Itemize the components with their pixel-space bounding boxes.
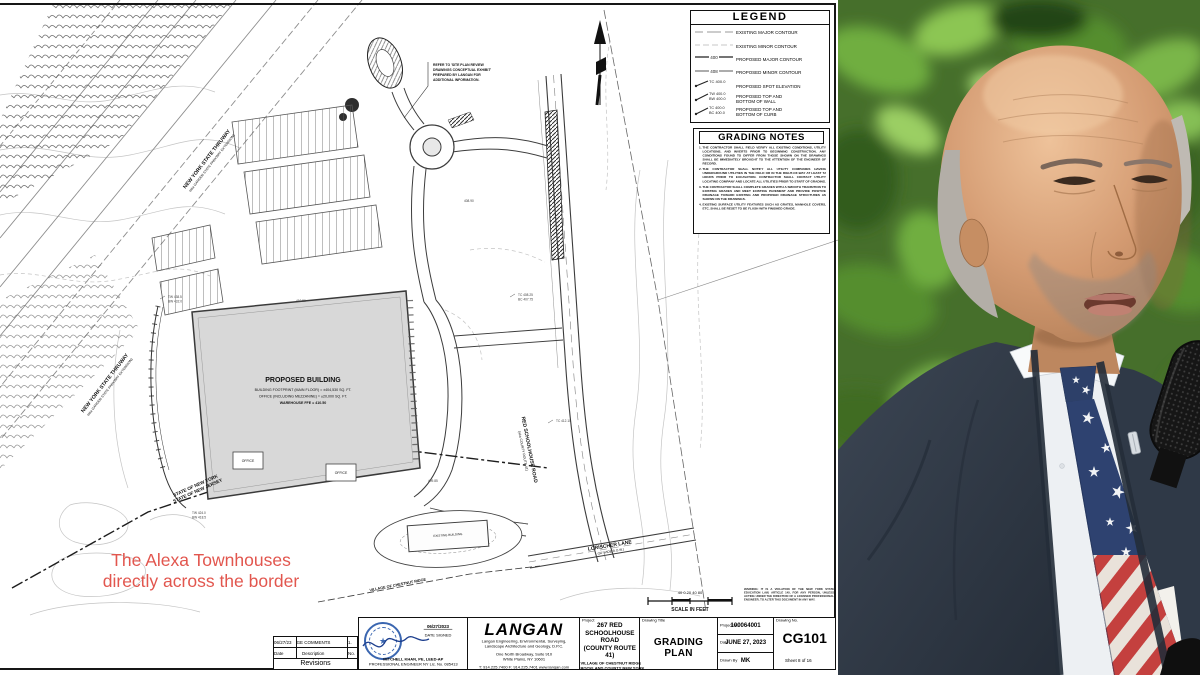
svg-text:OFFICE: OFFICE	[242, 459, 255, 463]
parking-lots	[152, 105, 382, 315]
annotation-alexa-townhouses: The Alexa Townhouses directly across the…	[88, 550, 314, 592]
drawing-number-cell: Drawing No. CG101 Sheet 8 of 16	[774, 618, 835, 669]
photo-graphic	[838, 0, 1200, 675]
warning-note: WARNING: IT IS A VIOLATION OF THE NEW YO…	[744, 588, 834, 614]
svg-text:TC 412.10: TC 412.10	[556, 419, 571, 423]
svg-text:TW 424.0: TW 424.0	[192, 511, 206, 515]
svg-text:OFFICE (INCLUDING MEZZANINE) =: OFFICE (INCLUDING MEZZANINE) = ±20,000 S…	[259, 395, 348, 399]
thruway-sublabel: (aka GARDEN STATE PARKWAY EXTENSION)	[188, 133, 236, 192]
grading-notes-title: GRADING NOTES	[699, 131, 824, 144]
langan-logo: LANGAN	[468, 620, 579, 640]
grading-note: THE CONTRACTOR SHALL FIELD VERIFY ALL EX…	[703, 146, 827, 166]
grading-notes-box: GRADING NOTES THE CONTRACTOR SHALL FIELD…	[693, 128, 830, 234]
drawing-number: CG101	[774, 630, 835, 646]
svg-text:408: 408	[710, 69, 718, 74]
svg-text:TC 400.0: TC 400.0	[709, 79, 726, 84]
firm-cell: LANGAN Langan Engineering, Environmental…	[468, 618, 580, 669]
engineer-name: MITCHELL KHAN, PE, LEED-AP PROFESSIONAL …	[359, 658, 467, 668]
legend-item: TC 400.0BC 400.0 PROPOSED TOP ANDBOTTOM …	[691, 105, 829, 118]
grading-notes-body: THE CONTRACTOR SHALL FIELD VERIFY ALL EX…	[697, 146, 826, 211]
grading-note: EXISTING SURFACE UTILITY FEATURES SUCH A…	[703, 203, 827, 211]
revision-header-row: Date Description No.	[274, 648, 357, 659]
svg-text:BUILDING FOOTPRINT (MAIN FLOOR: BUILDING FOOTPRINT (MAIN FLOOR) = ±404,5…	[255, 388, 352, 392]
meta-cell: Project No.100064001 DateJUNE 27, 2023 D…	[718, 618, 775, 669]
svg-text:PROPOSED BUILDING: PROPOSED BUILDING	[265, 377, 341, 384]
svg-text:400: 400	[710, 55, 718, 60]
title-block: ★ 06/27/2023 DATE SIGNED MITCHELL KHAN, …	[358, 617, 836, 670]
svg-text:408.90: 408.90	[464, 199, 474, 203]
svg-text:BW 432.0: BW 432.0	[168, 300, 182, 304]
svg-text:410.50: 410.50	[296, 299, 306, 303]
svg-text:TC 408.25: TC 408.25	[518, 293, 533, 297]
grading-plan-sheet: REFER TO 'SITE PLAN REVIEW DRAWINGS CONC…	[0, 0, 838, 675]
retaining-wall	[151, 306, 186, 508]
svg-text:OFFICE: OFFICE	[335, 471, 348, 475]
svg-text:WAREHOUSE FFE = 410.50: WAREHOUSE FFE = 410.50	[280, 401, 326, 405]
svg-text:40 0 20 40 80: 40 0 20 40 80	[678, 590, 703, 595]
note-line: REFER TO 'SITE PLAN REVIEW	[433, 63, 485, 67]
svg-text:SCALE IN FEET: SCALE IN FEET	[671, 607, 709, 613]
shirt-button	[1060, 464, 1065, 469]
revisions-block: 06/27/23 REVISED PER VILLAGE COMMENTS 1.…	[273, 636, 358, 670]
svg-text:BC 407.75: BC 407.75	[518, 298, 533, 302]
note-line: ADDITIONAL INFORMATION.	[433, 78, 479, 82]
drawing-title: GRADING PLAN	[640, 637, 716, 659]
grading-note: THE CONTRACTOR SHALL NOTIFY ALL UTILITY …	[703, 168, 827, 184]
politician-photo	[838, 0, 1200, 675]
tie-knot	[1060, 366, 1096, 402]
engineer-seal-cell: ★ 06/27/2023 DATE SIGNED MITCHELL KHAN, …	[359, 618, 468, 669]
grading-note: THE CONTRACTOR SHALL COMPLETE GRADES WIT…	[703, 185, 827, 201]
svg-text:TW 400.0: TW 400.0	[709, 92, 725, 96]
north-arrow-icon	[594, 20, 606, 105]
plot-footer-meta: Date: 6/27/2023 User: mk Style Table: La…	[452, 669, 836, 675]
reference-note: REFER TO 'SITE PLAN REVIEW DRAWINGS CONC…	[404, 62, 491, 118]
note-line: PREPARED BY LANGAN FOR	[433, 73, 481, 77]
legend-box: LEGEND EXISTING MAJOR CONTOUR EXISTING M…	[690, 10, 830, 123]
drawing-title-cell: Drawing Title GRADING PLAN	[640, 618, 717, 669]
revisions-title: Revisions	[274, 659, 357, 667]
date-signed: 06/27/2023 DATE SIGNED	[412, 624, 464, 639]
svg-text:BW 400.0: BW 400.0	[709, 97, 726, 101]
svg-text:BW 418.5: BW 418.5	[192, 516, 206, 520]
svg-text:409.85: 409.85	[428, 479, 438, 483]
svg-text:TC 400.0: TC 400.0	[709, 106, 725, 110]
village-label: VILLAGE OF CHESTNUT RIDGE	[369, 577, 427, 592]
graphic-scale: 40 0 20 40 80 SCALE IN FEET	[642, 588, 738, 614]
project-cell: Project 267 RED SCHOOLHOUSE ROAD (COUNTY…	[580, 618, 640, 669]
proposed-curb-symbol: TC 400.0BC 400.0	[694, 103, 736, 122]
note-line: DRAWINGS CONCEPTUAL EXHIBIT'	[433, 68, 491, 72]
svg-text:BC 400.0: BC 400.0	[709, 111, 725, 115]
lower-lip	[1088, 304, 1132, 316]
screenshot: REFER TO 'SITE PLAN REVIEW DRAWINGS CONC…	[0, 0, 1200, 675]
thruway-label: NEW YORK STATE THRUWAY	[182, 128, 232, 190]
revision-row: 06/27/23 REVISED PER VILLAGE COMMENTS 1.	[274, 637, 357, 648]
svg-text:TW 438.5: TW 438.5	[168, 295, 182, 299]
